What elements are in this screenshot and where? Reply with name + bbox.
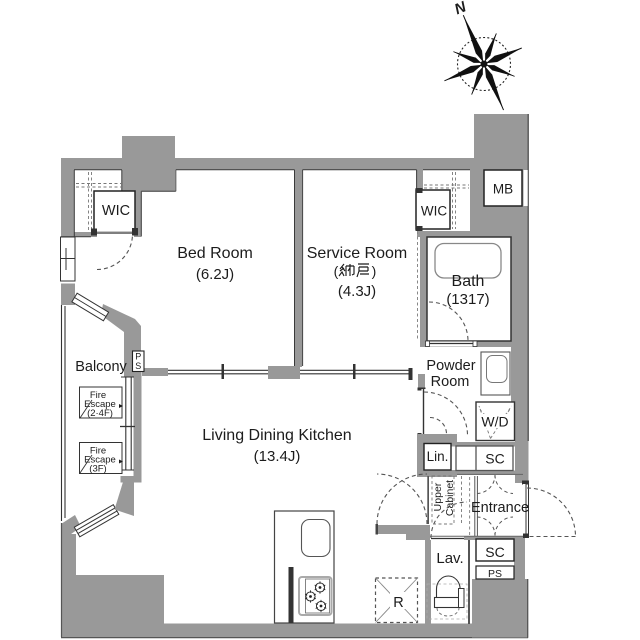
svg-text:Lin.: Lin.: [427, 449, 449, 464]
svg-text:MB: MB: [493, 182, 513, 197]
svg-text:(1317): (1317): [446, 291, 489, 308]
svg-text:(3F): (3F): [89, 464, 106, 475]
svg-text:S: S: [135, 361, 141, 371]
svg-text:Entrance: Entrance: [471, 500, 529, 516]
svg-text:(2·4F): (2·4F): [87, 408, 113, 419]
svg-text:PS: PS: [488, 568, 502, 580]
svg-text:P: P: [135, 352, 141, 362]
svg-text:Living Dining Kitchen: Living Dining Kitchen: [202, 427, 351, 444]
svg-text:(6.2J): (6.2J): [196, 266, 234, 283]
svg-text:(13.4J): (13.4J): [254, 448, 301, 465]
svg-text:WIC: WIC: [102, 203, 130, 219]
svg-text:Bath: Bath: [452, 273, 485, 290]
svg-text:Powder: Powder: [426, 358, 475, 374]
svg-text:): ): [372, 263, 377, 279]
svg-text:(4.3J): (4.3J): [338, 283, 376, 300]
svg-text:Room: Room: [431, 374, 470, 390]
svg-text:WIC: WIC: [421, 204, 447, 219]
svg-text:Service Room: Service Room: [307, 245, 407, 262]
svg-text:R: R: [393, 595, 403, 611]
svg-text:Cabinet: Cabinet: [444, 480, 456, 516]
svg-text:SC: SC: [485, 544, 504, 560]
svg-text:W/D: W/D: [481, 414, 508, 430]
svg-text:Bed Room: Bed Room: [177, 245, 253, 262]
svg-text:SC: SC: [485, 451, 504, 467]
svg-text:Balcony: Balcony: [75, 359, 127, 375]
svg-text:Upper: Upper: [432, 482, 444, 511]
svg-text:Lav.: Lav.: [436, 550, 463, 567]
svg-text:(: (: [334, 263, 339, 279]
